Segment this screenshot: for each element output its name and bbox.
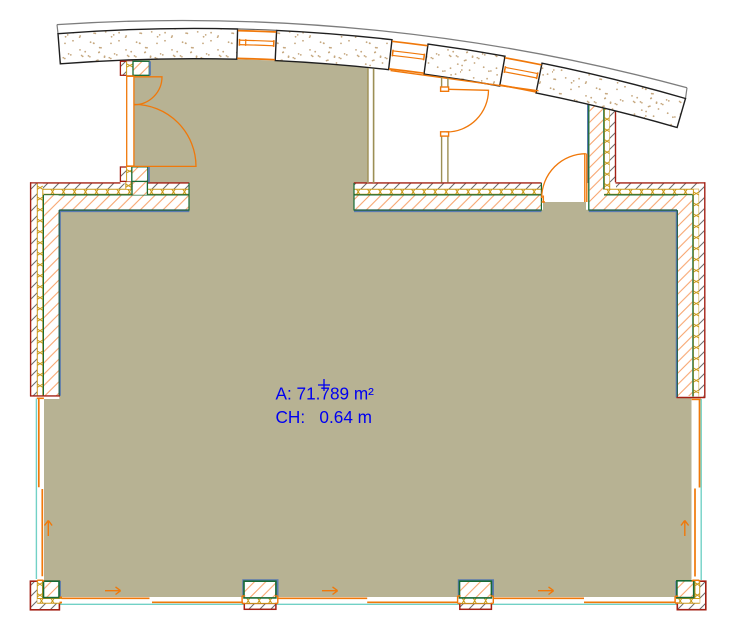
svg-text:CH: 0.64 m: CH: 0.64 m (276, 407, 372, 427)
svg-text:A: 71.789 m²: A: 71.789 m² (276, 384, 375, 404)
